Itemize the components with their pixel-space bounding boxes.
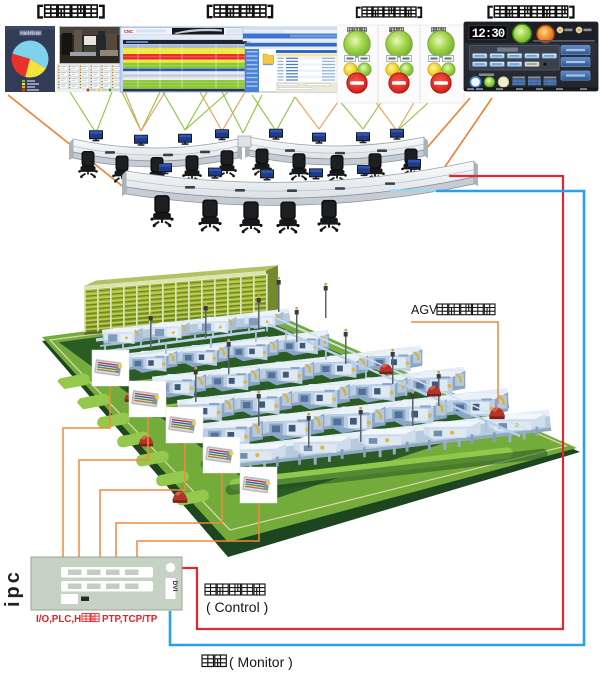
svg-text:ipc: ipc [2,569,24,607]
svg-text:PTP,TCP/TP: PTP,TCP/TP [102,614,158,625]
svg-text:( Control ): ( Control ) [206,599,268,615]
svg-text:AGV: AGV [411,303,438,317]
svg-text:DVI: DVI [171,581,178,592]
svg-text:12:30: 12:30 [472,27,505,41]
svg-text:( Monitor ): ( Monitor ) [229,654,293,670]
svg-text:I/O,PLC,H: I/O,PLC,H [36,614,81,625]
svg-text:CNC: CNC [124,29,133,34]
